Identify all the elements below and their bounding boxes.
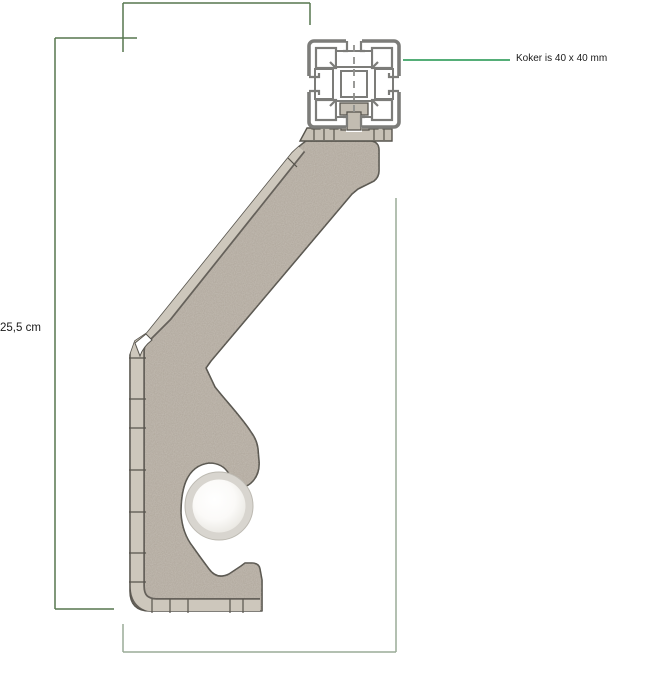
- height-dimension-label: 25,5 cm: [0, 322, 41, 335]
- koker-annotation-label: Koker is 40 x 40 mm: [516, 53, 607, 64]
- height-dimension-line: [55, 38, 137, 609]
- bracket-diagram-svg: [0, 0, 657, 700]
- technical-drawing: 25,5 cm Koker is 40 x 40 mm: [0, 0, 657, 700]
- top-width-dimension-line: [123, 3, 310, 52]
- tube-hole: [185, 472, 253, 540]
- corner-bracket: [115, 120, 405, 640]
